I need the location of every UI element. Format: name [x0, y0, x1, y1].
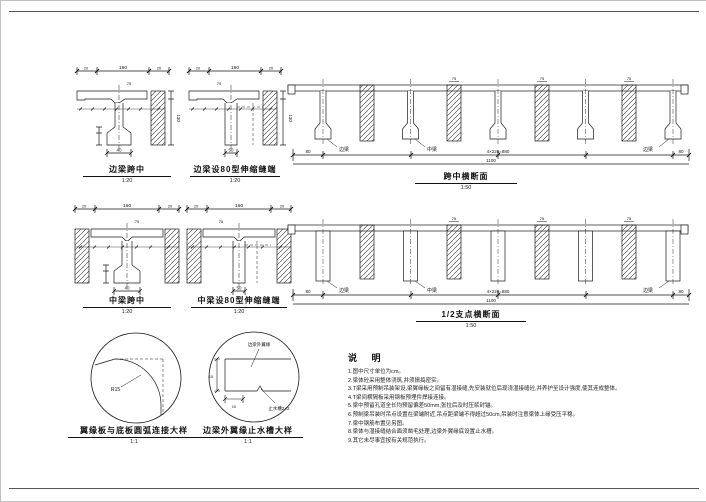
section-e-drawing: 160 20 20 75 50: [183, 199, 295, 304]
dim-text: 80: [678, 149, 684, 154]
dim-text: 20: [82, 205, 86, 209]
dim-text: 75: [452, 76, 457, 81]
section-b-drawing: 160 20 20 75 130 50: [183, 61, 295, 166]
dim-text: 20: [157, 67, 161, 71]
detail-h-scale: 1:1: [178, 439, 318, 445]
detail-g-geometry: [91, 333, 181, 423]
dim-text: 40: [116, 148, 122, 153]
section-d-scale: 1:20: [71, 309, 183, 315]
girder-label: 边梁: [339, 287, 349, 294]
dim-text: 1100: [486, 158, 496, 163]
dim-text: 75: [217, 81, 222, 86]
sheet-bottom-border: [9, 488, 699, 489]
dim-text: 40: [124, 286, 130, 291]
section-a-drawing: 160 20 20 75 130 40: [71, 61, 183, 166]
section-a-title: 边梁跨中: [71, 164, 183, 175]
section-a-geometry: [75, 67, 174, 157]
dim-text: 80: [305, 149, 311, 154]
girder-label: 边梁: [339, 146, 349, 153]
detail-h-title: 边梁外翼缘止水槽大样: [178, 425, 318, 436]
dim-text: 160: [231, 65, 239, 71]
section-a-scale: 1:20: [71, 178, 183, 184]
dim-text: 10: [232, 404, 237, 409]
dim-text: 75: [219, 219, 224, 224]
dim-text: 4×220=880: [487, 149, 510, 154]
section-a-label: 边梁跨中 1:20: [71, 164, 183, 184]
note-line: 5.梁中预留孔道全长均预留偏差50mm,张拉后及时压浆封锚。: [348, 402, 700, 411]
section-c-title: 跨中横断面: [401, 171, 531, 182]
section-e-geometry: [185, 205, 293, 295]
section-d-title: 中梁跨中: [71, 295, 183, 306]
notes-title: 说 明: [348, 351, 700, 364]
dim-text: 20: [168, 205, 172, 209]
section-c-scale: 1:50: [401, 185, 531, 191]
cad-drawing-sheet: 160 20 20 75 130 40 边梁跨中 1:20 160 20 20: [0, 0, 706, 502]
section-c-drawing: 80 4×220=880 80 1100 75 75 75 边梁 中梁 边梁: [283, 65, 695, 173]
dim-text: 75: [127, 81, 132, 86]
section-f-label: 1/2支点横断面 1:50: [401, 309, 541, 329]
section-d-drawing: 160 20 20 75 40: [71, 199, 183, 304]
note-line: 6.预制梁吊装时吊点设置在梁端附近,吊点距梁端不得超过50cm,吊装时注意梁体上…: [348, 411, 700, 420]
title-rule: [416, 321, 525, 322]
section-d-label: 中梁跨中 1:20: [71, 295, 183, 315]
dim-text: 75: [540, 76, 545, 81]
note-line: 8.梁体与湿接缝结合面须凿毛处理,边梁外翼缘底设置止水槽。: [348, 428, 700, 437]
title-rule: [193, 437, 302, 438]
girder-label: 边梁: [643, 287, 653, 294]
outer-flange-label: 边梁外翼缘: [248, 341, 271, 348]
section-c-label: 跨中横断面 1:50: [401, 171, 531, 191]
note-line: 9.其它未尽事宜按有关规范执行。: [348, 437, 700, 446]
note-line: 2.梁体砼采用整体浇筑,并须振捣密实。: [348, 377, 700, 386]
note-line: 4.T梁间横隔板采用钢板预埋件焊接连接。: [348, 394, 700, 403]
section-b-title: 边梁设80型伸缩缝端: [177, 164, 293, 175]
section-f-scale: 1:50: [401, 323, 541, 329]
section-f-title: 1/2支点横断面: [401, 309, 541, 320]
title-rule: [191, 307, 288, 308]
detail-h-label: 边梁外翼缘止水槽大样 1:1: [178, 425, 318, 445]
sheet-top-border: [9, 11, 699, 12]
detail-h-drawing: 15 10 边梁外翼缘 止水槽2×2: [199, 329, 309, 427]
dim-text: 50: [228, 148, 234, 153]
dim-text: 50: [236, 286, 242, 291]
girder-label: 边梁: [643, 146, 653, 153]
title-rule: [190, 176, 280, 177]
dim-text: 75: [540, 216, 545, 221]
dim-text: 130: [176, 114, 181, 122]
girder-label: 中梁: [427, 287, 437, 294]
section-b-label: 边梁设80型伸缩缝端 1:20: [177, 164, 293, 184]
note-line: 7.梁中钢筋布置见另图。: [348, 420, 700, 429]
section-b-scale: 1:20: [177, 178, 293, 184]
dim-text: 80: [678, 289, 684, 294]
note-line: 3.T梁采用预制吊装架设,梁翼缘板之间留有湿接缝,先安装就位后现浇湿接缝砼,并养…: [348, 385, 700, 394]
dim-text: 15: [209, 374, 214, 379]
girder-label: 中梁: [427, 146, 437, 153]
drip-groove-label: 止水槽2×2: [268, 405, 290, 412]
dim-text: 4×220=880: [487, 289, 510, 294]
dim-text: 75: [627, 216, 632, 221]
dim-text: 80: [305, 289, 311, 294]
dim-text: 20: [84, 67, 88, 71]
section-b-geometry: [187, 67, 286, 157]
dim-text: 75: [452, 216, 457, 221]
dim-text: 75: [627, 76, 632, 81]
dim-text: 75: [135, 219, 140, 224]
title-rule: [415, 183, 516, 184]
title-rule: [83, 307, 170, 308]
dim-text: 160: [119, 65, 127, 71]
dim-text: 1100: [486, 298, 496, 303]
notes-block: 说 明 1.图中尺寸单位为cm。 2.梁体砼采用整体浇筑,并须振捣密实。 3.T…: [348, 351, 700, 445]
dim-text: 160: [123, 203, 131, 209]
dim-text: 160: [235, 203, 243, 209]
dim-text: 20: [196, 67, 200, 71]
section-f-drawing: 80 4×220=880 80 1100 75 75 75 边梁 中梁 边梁: [283, 205, 695, 313]
title-rule: [83, 176, 170, 177]
note-line: 1.图中尺寸单位为cm。: [348, 368, 700, 377]
radius-label: R15: [111, 387, 120, 393]
dim-text: 20: [269, 67, 273, 71]
detail-g-drawing: R15: [81, 329, 191, 427]
section-d-geometry: [73, 205, 181, 295]
dim-text: 20: [194, 205, 198, 209]
